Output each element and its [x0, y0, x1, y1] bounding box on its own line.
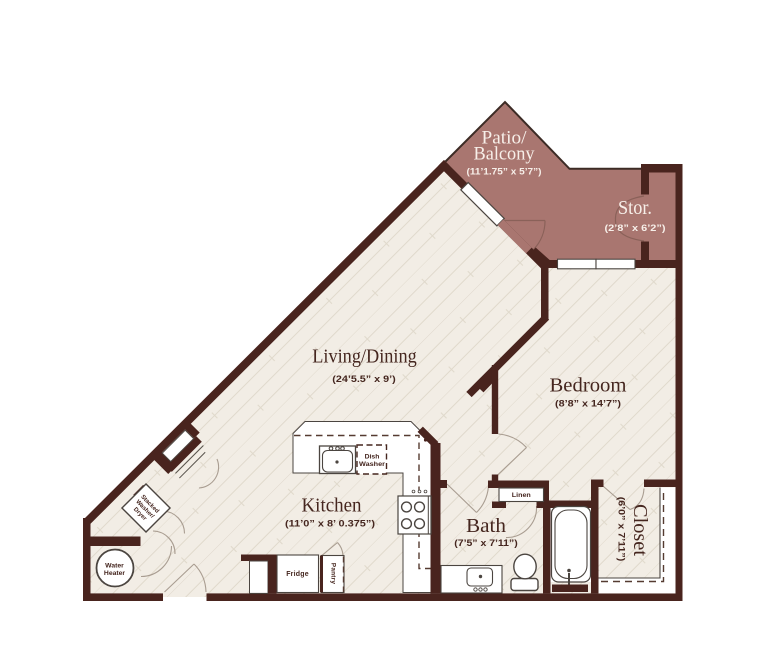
- svg-text:Linen: Linen: [512, 492, 531, 499]
- svg-text:Kitchen: Kitchen: [302, 495, 362, 517]
- svg-text:Water: Water: [105, 563, 124, 570]
- svg-text:Heater: Heater: [104, 570, 126, 577]
- svg-text:Closet: Closet: [629, 504, 651, 556]
- svg-text:Living/Dining: Living/Dining: [312, 346, 417, 368]
- svg-text:Washer: Washer: [359, 461, 385, 468]
- svg-text:Fridge: Fridge: [286, 571, 309, 578]
- svg-text:Bath: Bath: [466, 515, 506, 537]
- svg-text:(11’0” x 8’ 0.375”): (11’0” x 8’ 0.375”): [285, 519, 375, 530]
- svg-text:Balcony: Balcony: [474, 144, 535, 165]
- svg-text:(11’1.75” x 5’7”): (11’1.75” x 5’7”): [467, 167, 542, 177]
- svg-text:Bedroom: Bedroom: [550, 375, 627, 397]
- svg-text:(2’8” x 6’2”): (2’8” x 6’2”): [605, 223, 666, 233]
- svg-text:Stor.: Stor.: [618, 197, 652, 219]
- svg-text:Dish: Dish: [365, 454, 380, 461]
- svg-text:(8’8” x 14’7”): (8’8” x 14’7”): [555, 399, 621, 410]
- svg-text:(24’5.5” x 9’): (24’5.5” x 9’): [332, 374, 396, 385]
- svg-text:Pantry: Pantry: [330, 563, 337, 585]
- svg-text:(7’5” x 7’11”): (7’5” x 7’11”): [454, 538, 518, 549]
- svg-text:(6’0” x 7’11”): (6’0” x 7’11”): [617, 497, 627, 562]
